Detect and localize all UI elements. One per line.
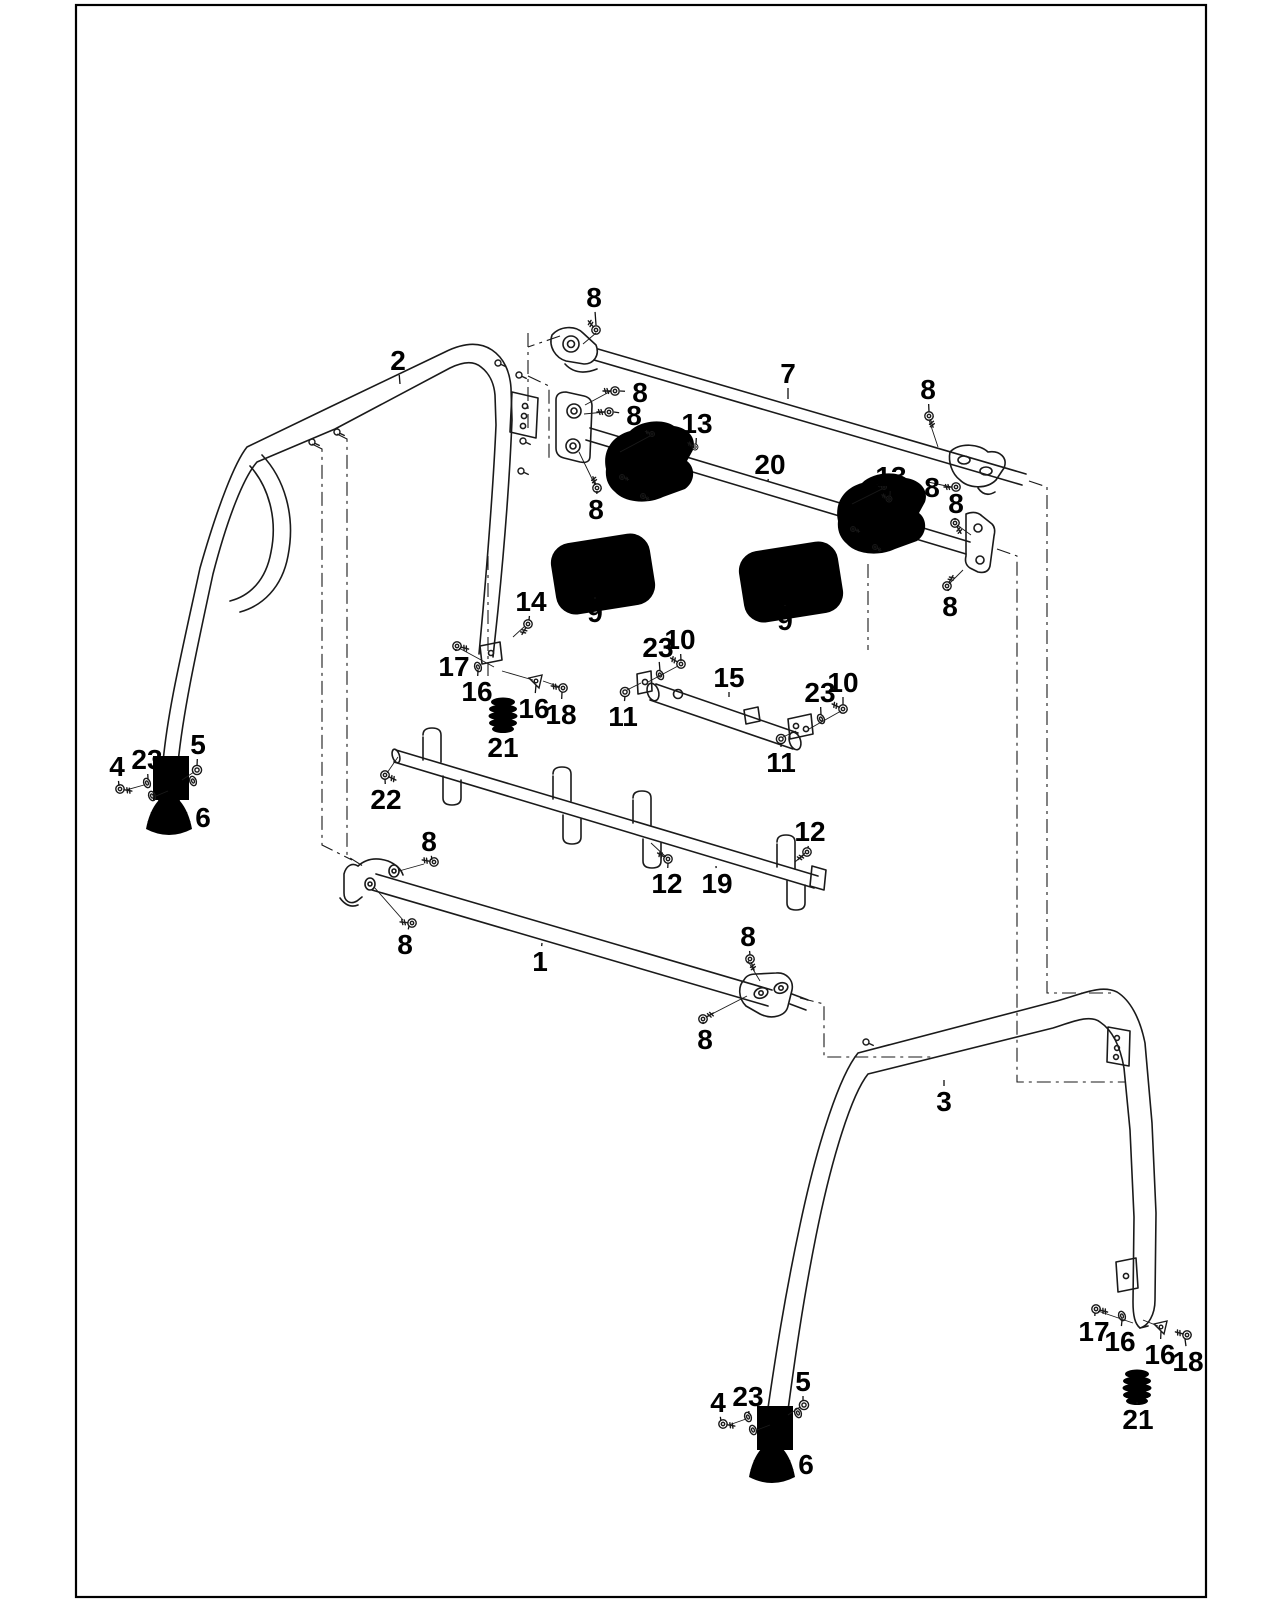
callout-label-part-20: 20 — [754, 449, 785, 480]
callout-label-part-16: 16 — [1144, 1339, 1175, 1370]
callout-label-part-16: 16 — [1104, 1326, 1135, 1357]
hole-glyph — [515, 371, 528, 381]
washer-glyph — [1117, 1310, 1126, 1321]
callout-label-part-5: 5 — [795, 1366, 811, 1397]
callout-label-part-15: 15 — [713, 662, 744, 693]
part-21-bellows-left — [489, 698, 518, 734]
left-end-bracket — [344, 864, 362, 902]
clip — [423, 728, 441, 762]
callout-label-part-18: 18 — [545, 699, 576, 730]
screw-glyph — [400, 918, 417, 928]
clip — [443, 776, 461, 805]
clip — [633, 791, 651, 825]
part-9-headrest-left — [548, 531, 658, 618]
screw-glyph — [585, 318, 602, 336]
callout-label-part-18: 18 — [1172, 1346, 1203, 1377]
callout-label-part-12: 12 — [794, 816, 825, 847]
screw-glyph — [941, 574, 956, 592]
callout-label-part-9: 9 — [777, 605, 793, 636]
callout-label-part-1: 1 — [532, 946, 548, 977]
screw-glyph — [597, 408, 613, 416]
callout-leader-3 — [614, 412, 619, 413]
screw-glyph — [550, 682, 567, 693]
callout-label-part-4: 4 — [109, 751, 125, 782]
callout-label-part-3: 3 — [936, 1086, 952, 1117]
callout-label-part-8: 8 — [586, 282, 602, 313]
callout-label-part-8: 8 — [588, 494, 604, 525]
callout-label-part-6: 6 — [798, 1449, 814, 1480]
callout-label-part-5: 5 — [190, 729, 206, 760]
diagram-artwork — [146, 328, 1156, 1483]
callout-label-part-12: 12 — [651, 868, 682, 899]
screw-glyph — [924, 411, 937, 429]
nut-glyph — [192, 765, 201, 774]
parts-diagram-svg: 8288137820138888991417161618212310151123… — [0, 0, 1280, 1600]
diagram-page: 8288137820138888991417161618212310151123… — [0, 0, 1280, 1600]
nut-glyph — [620, 687, 629, 696]
callout-leader-18 — [535, 685, 536, 693]
part-21-bellows-right — [1123, 1370, 1152, 1406]
callout-leader-21 — [659, 662, 660, 671]
callout-label-part-10: 10 — [664, 624, 695, 655]
callout-label-part-13: 13 — [681, 408, 712, 439]
callout-label-part-8: 8 — [697, 1024, 713, 1055]
hole-glyph — [333, 428, 346, 438]
callout-label-part-14: 14 — [515, 586, 547, 617]
washer-glyph — [655, 669, 665, 680]
callout-label-part-8: 8 — [948, 488, 964, 519]
grab-handle-bend — [240, 455, 290, 612]
clip — [787, 881, 805, 910]
washer-glyph — [816, 713, 826, 724]
callout-label-part-10: 10 — [827, 667, 858, 698]
callout-label-part-21: 21 — [487, 732, 518, 763]
callout-label-part-23: 23 — [131, 744, 162, 775]
page-border — [76, 5, 1206, 1597]
nut-glyph — [799, 1400, 808, 1409]
callout-label-part-2: 2 — [390, 345, 406, 376]
clip — [563, 815, 581, 844]
hole-glyph — [517, 467, 530, 477]
screw-glyph — [1091, 1304, 1109, 1316]
reference-lines — [312, 333, 1125, 1082]
callout-label-part-13: 13 — [875, 461, 906, 492]
callout-label-part-22: 22 — [370, 784, 401, 815]
screw-glyph — [589, 475, 602, 493]
clip — [553, 767, 571, 801]
callout-label-part-8: 8 — [421, 826, 437, 857]
washer-glyph — [188, 775, 197, 786]
hole-glyph — [308, 438, 321, 448]
callout-label-part-8: 8 — [397, 929, 413, 960]
callout-leader-0 — [595, 312, 596, 325]
callout-label-part-8: 8 — [924, 472, 940, 503]
callout-label-part-8: 8 — [740, 921, 756, 952]
screw-glyph — [795, 846, 813, 863]
screw-glyph — [949, 517, 964, 535]
part-19-support-rail — [391, 728, 826, 910]
callout-label-part-11: 11 — [608, 701, 638, 732]
screw-glyph — [518, 618, 533, 636]
leg-lower-bracket — [1116, 1258, 1138, 1292]
callout-leader-1 — [399, 375, 400, 384]
nut-glyph — [776, 734, 785, 743]
screw-glyph — [421, 856, 438, 867]
pivot-bracket — [556, 392, 592, 462]
screw-glyph — [379, 769, 397, 783]
screw-glyph — [656, 849, 674, 864]
screw-glyph — [697, 1009, 715, 1024]
callout-label-part-21: 21 — [1122, 1404, 1153, 1435]
washer-glyph — [142, 777, 151, 788]
callout-label-part-11: 11 — [766, 747, 796, 778]
callout-label-part-16: 16 — [461, 676, 492, 707]
mount-plate-3-holes — [510, 392, 538, 438]
callout-label-part-19: 19 — [701, 868, 732, 899]
screw-glyph — [115, 784, 132, 795]
callout-label-part-9: 9 — [587, 597, 603, 628]
hole-glyph — [862, 1038, 875, 1048]
part-6-boot-left — [146, 796, 192, 835]
callout-label-part-7: 7 — [780, 358, 796, 389]
screw-glyph — [745, 954, 758, 972]
callout-label-part-6: 6 — [195, 802, 211, 833]
washer-glyph — [743, 1411, 752, 1422]
washer-glyph — [748, 1424, 757, 1435]
callout-label-part-8: 8 — [920, 374, 936, 405]
callout-label-part-8: 8 — [626, 400, 642, 431]
callout-label-part-8: 8 — [942, 591, 958, 622]
hole-glyph — [519, 437, 532, 447]
callout-label-part-23: 23 — [732, 1381, 763, 1412]
screw-glyph — [1174, 1328, 1192, 1340]
callout-label-part-4: 4 — [710, 1387, 726, 1418]
